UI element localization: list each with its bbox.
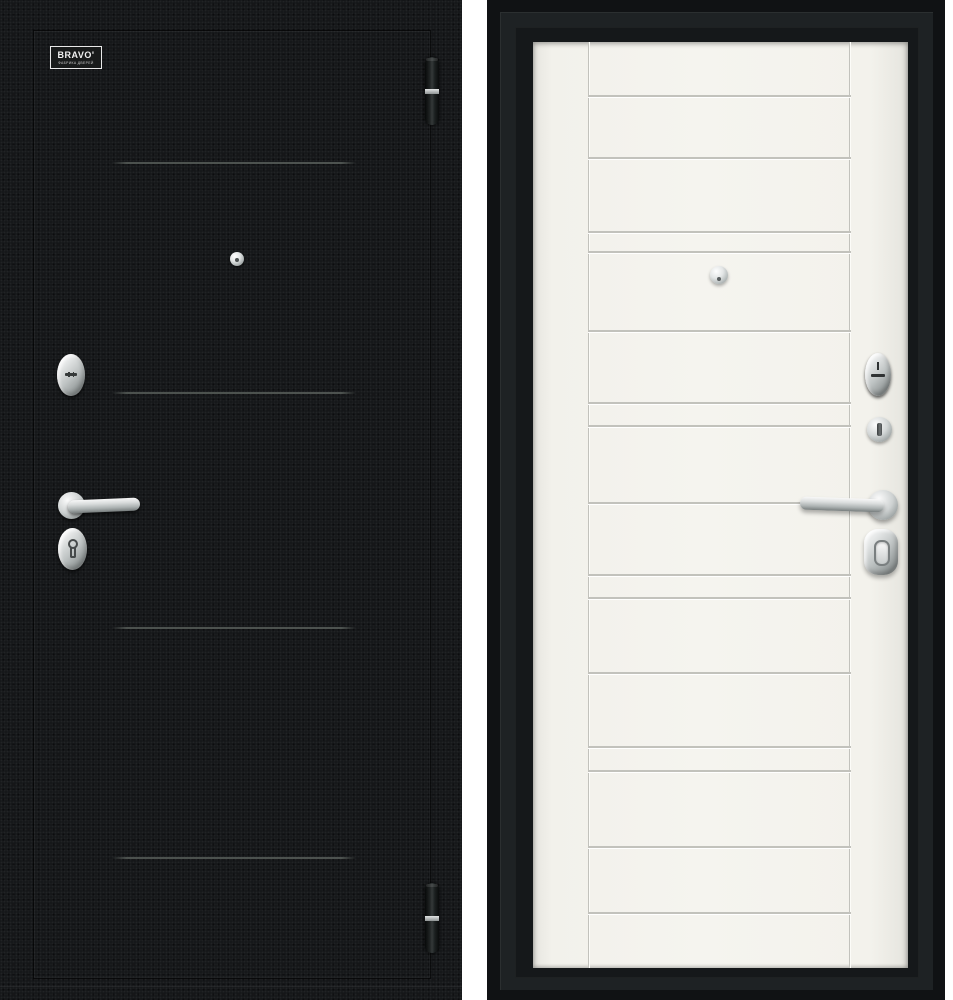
panel-groove (588, 746, 851, 748)
panel-groove (588, 330, 851, 332)
peephole-icon (710, 266, 728, 284)
panel-groove (588, 574, 851, 576)
panel-groove (588, 846, 851, 848)
panel-groove (588, 95, 851, 97)
panel-groove (588, 425, 851, 427)
panel-groove (588, 402, 851, 404)
thumbturn-escutcheon (864, 529, 898, 575)
panel-groove (588, 231, 851, 233)
hinge (425, 883, 439, 953)
panel-groove (588, 770, 851, 772)
keyhole-tick-icon (877, 362, 879, 370)
product-photo: BRAVO' ФАБРИКА ДВЕРЕЙ (0, 0, 953, 1000)
door-exterior-panel: BRAVO' ФАБРИКА ДВЕРЕЙ (0, 0, 462, 1000)
hinge (425, 57, 439, 125)
door-handle (798, 490, 898, 520)
night-latch-thumbturn (867, 417, 892, 442)
panel-groove (588, 597, 851, 599)
door-leaf (533, 42, 908, 968)
handle-lever (800, 497, 884, 513)
panel-groove (588, 672, 851, 674)
keyhole-slot-icon (871, 374, 885, 377)
door-interior-panel (487, 0, 945, 1000)
panel-groove (588, 251, 851, 253)
lock-cylinder (865, 353, 891, 396)
thumbturn-knob (874, 540, 890, 566)
panel-groove (588, 157, 851, 159)
panel-groove (588, 912, 851, 914)
